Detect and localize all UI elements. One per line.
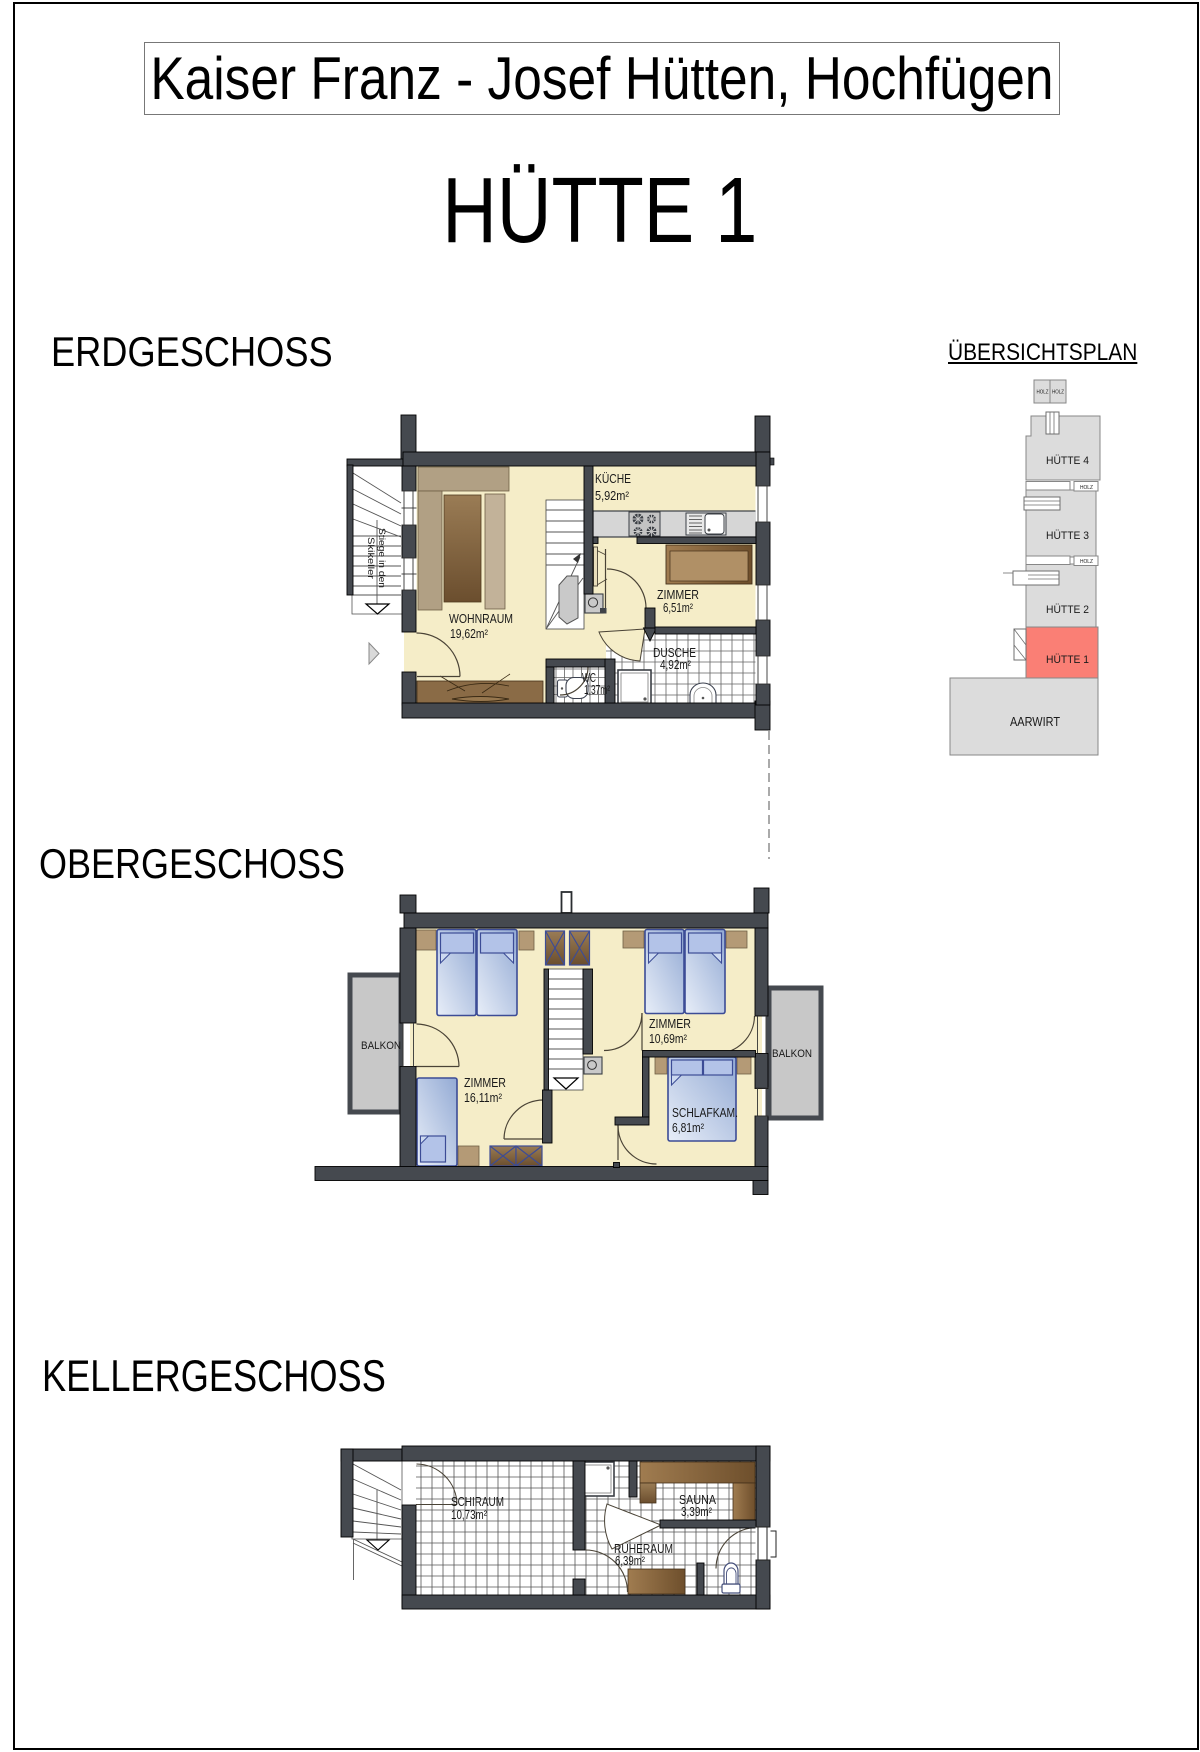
svg-text:Stiege in den: Stiege in den (377, 528, 387, 588)
svg-text:HÜTTE 3: HÜTTE 3 (1046, 530, 1089, 542)
svg-text:1,37m²: 1,37m² (584, 682, 610, 697)
svg-text:Skikeller: Skikeller (366, 537, 376, 579)
svg-text:ZIMMER: ZIMMER (464, 1075, 506, 1090)
svg-text:HOLZ: HOLZ (1037, 390, 1049, 396)
svg-text:HOLZ: HOLZ (1052, 390, 1064, 396)
svg-text:6,81m²: 6,81m² (672, 1120, 705, 1135)
svg-text:HÜTTE 1: HÜTTE 1 (1046, 654, 1089, 666)
svg-text:KÜCHE: KÜCHE (595, 471, 631, 486)
svg-text:6,39m²: 6,39m² (615, 1554, 645, 1568)
svg-text:WOHNRAUM: WOHNRAUM (449, 611, 513, 626)
svg-text:AARWIRT: AARWIRT (1010, 714, 1060, 729)
svg-text:SCHLAFKAM.: SCHLAFKAM. (672, 1105, 738, 1120)
svg-text:BALKON: BALKON (361, 1040, 401, 1052)
svg-text:BALKON: BALKON (772, 1048, 812, 1060)
svg-text:3,39m²: 3,39m² (681, 1505, 712, 1519)
svg-text:SCHIRAUM: SCHIRAUM (451, 1495, 504, 1509)
svg-text:HOLZ: HOLZ (1080, 485, 1093, 491)
svg-text:4,92m²: 4,92m² (660, 657, 692, 672)
svg-text:6,51m²: 6,51m² (663, 600, 693, 615)
svg-text:5,92m²: 5,92m² (595, 488, 630, 503)
svg-text:19,62m²: 19,62m² (450, 626, 489, 641)
svg-text:10,69m²: 10,69m² (649, 1031, 688, 1046)
svg-text:HÜTTE 4: HÜTTE 4 (1046, 455, 1089, 467)
svg-text:10,73m²: 10,73m² (451, 1508, 487, 1522)
svg-text:HOLZ: HOLZ (1080, 559, 1093, 565)
svg-text:16,11m²: 16,11m² (464, 1090, 503, 1105)
svg-text:HÜTTE 2: HÜTTE 2 (1046, 604, 1089, 616)
svg-text:ZIMMER: ZIMMER (649, 1016, 691, 1031)
